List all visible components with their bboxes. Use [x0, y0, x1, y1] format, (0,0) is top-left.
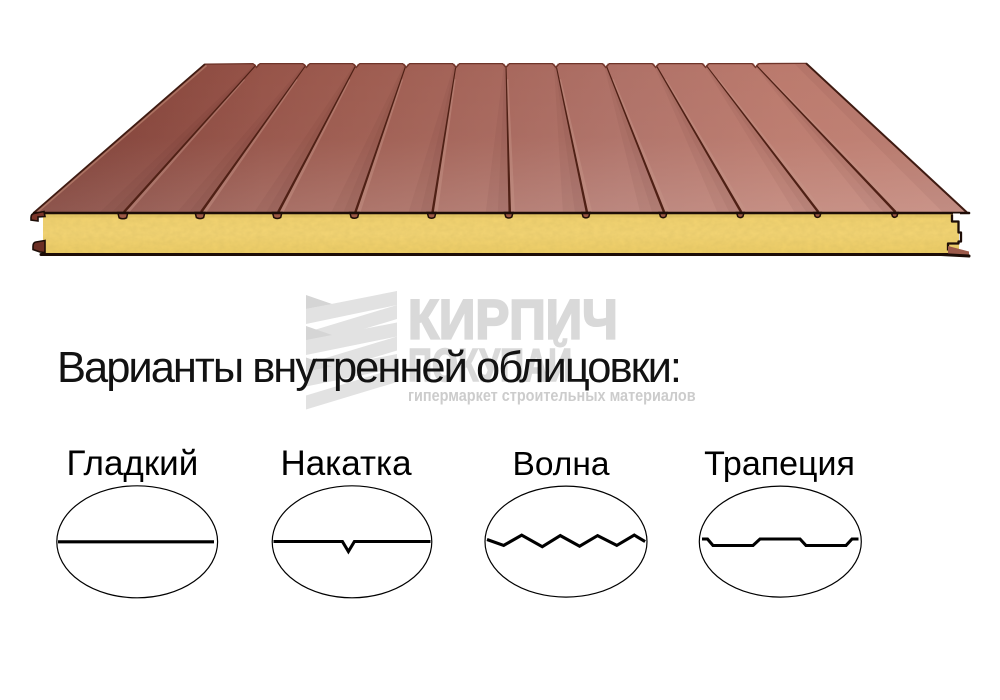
- svg-text:Варианты внутренней облицовки:: Варианты внутренней облицовки:: [57, 344, 680, 392]
- svg-text:Трапеция: Трапеция: [704, 445, 855, 483]
- svg-text:Накатка: Накатка: [280, 444, 412, 483]
- svg-text:Волна: Волна: [513, 446, 610, 483]
- svg-text:Гладкий: Гладкий: [67, 444, 199, 483]
